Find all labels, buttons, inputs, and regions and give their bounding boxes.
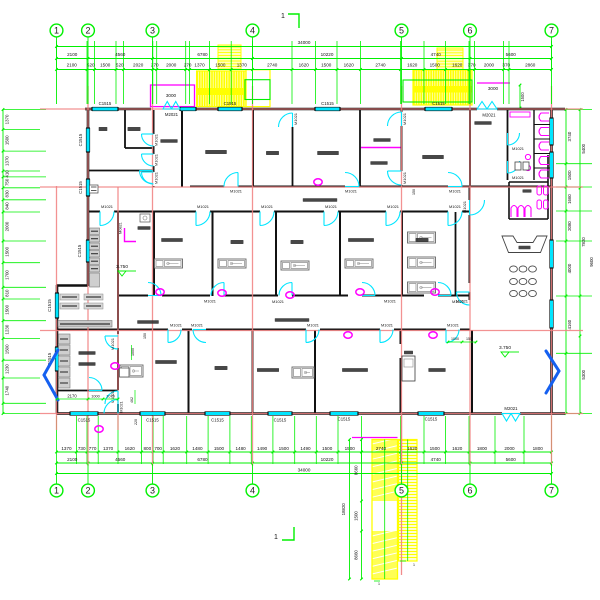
svg-text:1370: 1370 xyxy=(237,63,248,68)
svg-text:M1021: M1021 xyxy=(462,201,467,213)
svg-text:1500: 1500 xyxy=(322,446,333,451)
svg-text:M1021: M1021 xyxy=(230,189,242,194)
svg-text:2170: 2170 xyxy=(67,394,77,399)
svg-text:5: 5 xyxy=(399,486,404,496)
svg-text:8660: 8660 xyxy=(354,465,359,475)
svg-text:1500: 1500 xyxy=(214,446,225,451)
svg-text:18820: 18820 xyxy=(341,503,346,516)
svg-text:2020: 2020 xyxy=(133,63,144,68)
svg-text:1500: 1500 xyxy=(354,511,359,521)
svg-text:1: 1 xyxy=(281,13,285,20)
svg-text:3.750: 3.750 xyxy=(499,345,511,351)
svg-text:7: 7 xyxy=(549,26,554,36)
svg-text:M1021: M1021 xyxy=(512,175,524,180)
svg-text:5300: 5300 xyxy=(581,369,586,379)
svg-text:M1021: M1021 xyxy=(402,172,407,184)
svg-text:34000: 34000 xyxy=(298,40,311,45)
svg-text:4740: 4740 xyxy=(431,52,442,57)
svg-text:C1515: C1515 xyxy=(47,299,52,312)
svg-text:1500: 1500 xyxy=(5,135,10,145)
svg-text:1490: 1490 xyxy=(300,446,311,451)
svg-text:3: 3 xyxy=(150,26,155,36)
svg-text:M1021: M1021 xyxy=(381,323,393,328)
svg-text:2: 2 xyxy=(85,486,90,496)
svg-text:M1021: M1021 xyxy=(204,299,216,304)
svg-text:3: 3 xyxy=(150,486,155,496)
svg-text:4: 4 xyxy=(250,26,255,36)
svg-text:1800: 1800 xyxy=(477,446,488,451)
svg-text:7: 7 xyxy=(549,486,554,496)
svg-text:2000: 2000 xyxy=(5,221,10,231)
svg-text:M1021: M1021 xyxy=(272,299,284,304)
svg-text:700: 700 xyxy=(154,446,162,451)
svg-text:1620: 1620 xyxy=(407,446,418,451)
svg-text:830: 830 xyxy=(5,190,10,198)
svg-text:M1021: M1021 xyxy=(325,204,337,209)
svg-text:M1021: M1021 xyxy=(110,338,115,350)
svg-text:1620: 1620 xyxy=(452,63,463,68)
svg-text:M1021: M1021 xyxy=(307,323,319,328)
svg-text:2740: 2740 xyxy=(375,63,386,68)
svg-text:1480: 1480 xyxy=(235,446,246,451)
svg-text:1000: 1000 xyxy=(91,395,99,399)
svg-text:4560: 4560 xyxy=(115,457,126,462)
svg-text:1500: 1500 xyxy=(5,304,10,314)
svg-text:800: 800 xyxy=(143,446,151,451)
svg-text:730: 730 xyxy=(78,446,86,451)
svg-text:M1021: M1021 xyxy=(402,113,407,125)
svg-text:1480: 1480 xyxy=(192,446,203,451)
svg-text:4000: 4000 xyxy=(567,263,572,273)
svg-text:M1021: M1021 xyxy=(154,154,159,166)
svg-text:3000: 3000 xyxy=(166,93,177,98)
svg-text:1230: 1230 xyxy=(5,364,10,374)
svg-text:1500: 1500 xyxy=(430,63,441,68)
svg-text:1370: 1370 xyxy=(103,446,114,451)
svg-text:6780: 6780 xyxy=(197,52,208,57)
svg-text:3.750: 3.750 xyxy=(116,264,128,270)
svg-text:6780: 6780 xyxy=(197,457,208,462)
svg-text:1500: 1500 xyxy=(5,344,10,354)
svg-text:M2021: M2021 xyxy=(504,406,518,411)
svg-text:1620: 1620 xyxy=(170,446,181,451)
svg-text:10220: 10220 xyxy=(321,457,334,462)
svg-text:1500: 1500 xyxy=(100,63,111,68)
svg-text:5600: 5600 xyxy=(506,457,517,462)
svg-text:1490: 1490 xyxy=(257,446,268,451)
svg-text:1700: 1700 xyxy=(5,270,10,280)
svg-text:C1515: C1515 xyxy=(224,101,237,106)
svg-text:M1021: M1021 xyxy=(452,299,464,304)
svg-text:M1021: M1021 xyxy=(345,189,357,194)
svg-text:1370: 1370 xyxy=(5,114,10,124)
svg-text:1: 1 xyxy=(54,486,59,496)
svg-text:6: 6 xyxy=(467,486,472,496)
svg-text:1660: 1660 xyxy=(567,194,572,204)
svg-text:1230: 1230 xyxy=(5,324,10,334)
svg-text:M1021: M1021 xyxy=(197,204,209,209)
svg-text:M2021: M2021 xyxy=(482,113,496,118)
svg-text:520: 520 xyxy=(116,63,124,68)
svg-text:5400: 5400 xyxy=(581,143,586,153)
svg-text:34000: 34000 xyxy=(298,468,311,473)
svg-text:M1021: M1021 xyxy=(447,323,459,328)
svg-text:750: 750 xyxy=(5,178,10,186)
svg-text:1740: 1740 xyxy=(5,385,10,395)
svg-text:3740: 3740 xyxy=(567,131,572,141)
svg-text:1500: 1500 xyxy=(321,63,332,68)
svg-text:4: 4 xyxy=(250,486,255,496)
svg-text:M1021: M1021 xyxy=(154,134,159,146)
svg-text:2: 2 xyxy=(85,26,90,36)
svg-text:2740: 2740 xyxy=(267,63,278,68)
svg-text:1000: 1000 xyxy=(451,337,459,341)
svg-text:C1515: C1515 xyxy=(211,418,224,423)
svg-text:M1021: M1021 xyxy=(449,204,461,209)
svg-text:1: 1 xyxy=(54,26,59,36)
svg-text:8660: 8660 xyxy=(354,550,359,560)
svg-text:M1021: M1021 xyxy=(170,323,182,328)
svg-text:4560: 4560 xyxy=(115,52,126,57)
svg-text:C1515: C1515 xyxy=(274,418,287,423)
svg-text:2080: 2080 xyxy=(567,221,572,231)
svg-text:C1515: C1515 xyxy=(432,101,445,106)
svg-text:C1515: C1515 xyxy=(78,418,91,423)
svg-text:M1021: M1021 xyxy=(120,401,124,412)
svg-text:270: 270 xyxy=(184,63,192,68)
svg-text:1620: 1620 xyxy=(452,446,463,451)
svg-text:C1515: C1515 xyxy=(99,101,112,106)
svg-text:2000: 2000 xyxy=(484,63,495,68)
svg-text:M1021: M1021 xyxy=(384,299,396,304)
svg-text:M1021: M1021 xyxy=(293,113,298,125)
svg-text:C1515: C1515 xyxy=(78,133,83,146)
svg-text:410: 410 xyxy=(5,170,10,178)
svg-text:1500: 1500 xyxy=(215,63,226,68)
svg-text:M1021: M1021 xyxy=(101,204,113,209)
svg-text:1500: 1500 xyxy=(520,92,525,102)
svg-text:1370: 1370 xyxy=(5,156,10,166)
svg-text:1800: 1800 xyxy=(533,446,544,451)
svg-text:220: 220 xyxy=(134,419,138,425)
svg-text:M1021: M1021 xyxy=(449,189,461,194)
svg-text:2100: 2100 xyxy=(67,457,78,462)
svg-text:1620: 1620 xyxy=(407,63,418,68)
svg-text:1620: 1620 xyxy=(344,63,355,68)
svg-text:1000: 1000 xyxy=(131,348,135,356)
svg-text:1500: 1500 xyxy=(5,246,10,256)
svg-text:M1021: M1021 xyxy=(191,323,203,328)
svg-text:C1515: C1515 xyxy=(338,417,351,422)
svg-text:C1515: C1515 xyxy=(425,417,438,422)
svg-text:4740: 4740 xyxy=(431,457,442,462)
svg-text:2740: 2740 xyxy=(376,446,387,451)
svg-text:3000: 3000 xyxy=(488,86,499,91)
svg-text:7820: 7820 xyxy=(581,237,586,247)
svg-text:1: 1 xyxy=(274,534,278,541)
svg-text:150: 150 xyxy=(466,337,472,341)
svg-text:1500: 1500 xyxy=(567,170,572,180)
svg-text:2000: 2000 xyxy=(166,63,177,68)
svg-text:M1021: M1021 xyxy=(387,204,399,209)
svg-text:6: 6 xyxy=(467,26,472,36)
svg-text:1370: 1370 xyxy=(61,446,72,451)
svg-text:462: 462 xyxy=(130,397,134,403)
svg-text:1620: 1620 xyxy=(125,446,136,451)
svg-text:C1515: C1515 xyxy=(321,101,334,106)
svg-text:1500: 1500 xyxy=(345,446,356,451)
svg-text:840: 840 xyxy=(5,202,10,210)
svg-text:M2021: M2021 xyxy=(165,112,179,117)
svg-text:10220: 10220 xyxy=(321,52,334,57)
svg-text:5: 5 xyxy=(399,26,404,36)
svg-text:C1515: C1515 xyxy=(78,181,83,194)
svg-text:150: 150 xyxy=(143,333,147,339)
svg-text:2100: 2100 xyxy=(67,52,78,57)
svg-text:2860: 2860 xyxy=(525,63,536,68)
svg-text:M0821: M0821 xyxy=(119,222,123,234)
svg-text:1500: 1500 xyxy=(279,446,290,451)
svg-text:M1021: M1021 xyxy=(512,146,524,151)
svg-text:370: 370 xyxy=(468,63,476,68)
svg-text:150: 150 xyxy=(412,189,416,195)
svg-text:M1021: M1021 xyxy=(154,172,159,184)
svg-text:2100: 2100 xyxy=(67,63,78,68)
svg-text:1070: 1070 xyxy=(106,395,114,399)
svg-text:1370: 1370 xyxy=(194,63,205,68)
svg-text:1500: 1500 xyxy=(430,446,441,451)
svg-text:770: 770 xyxy=(89,446,97,451)
svg-text:4160: 4160 xyxy=(567,319,572,329)
svg-text:1620: 1620 xyxy=(299,63,310,68)
svg-text:810: 810 xyxy=(5,289,10,297)
svg-text:5600: 5600 xyxy=(506,52,517,57)
svg-text:9600: 9600 xyxy=(589,257,594,267)
svg-text:2000: 2000 xyxy=(504,446,515,451)
svg-text:M1021: M1021 xyxy=(261,204,273,209)
svg-text:370: 370 xyxy=(502,63,510,68)
svg-text:C1515: C1515 xyxy=(77,244,82,257)
svg-text:C1515: C1515 xyxy=(146,418,159,423)
